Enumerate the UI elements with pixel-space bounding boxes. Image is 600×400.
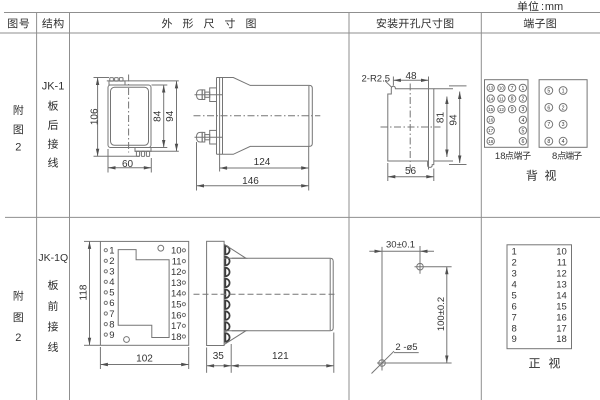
svg-text:mm: mm: [545, 1, 563, 13]
svg-text:2 -ø5: 2 -ø5: [395, 342, 417, 353]
svg-text:5: 5: [521, 128, 524, 134]
svg-text:118: 118: [78, 284, 89, 300]
svg-text:106: 106: [90, 108, 101, 125]
svg-text:30±0.1: 30±0.1: [386, 240, 415, 251]
svg-text:5: 5: [109, 288, 114, 299]
svg-text:JK-1: JK-1: [42, 80, 65, 92]
svg-text:7: 7: [109, 309, 114, 320]
svg-text:6: 6: [547, 105, 550, 111]
svg-text:1: 1: [562, 88, 565, 94]
svg-text:10: 10: [171, 246, 182, 257]
svg-text:94: 94: [165, 110, 176, 122]
svg-text:JK-1Q: JK-1Q: [38, 252, 68, 264]
svg-text:18: 18: [495, 151, 506, 162]
svg-text:1: 1: [521, 86, 524, 92]
svg-text:94: 94: [449, 114, 460, 126]
svg-text:17: 17: [171, 321, 182, 332]
svg-text:14: 14: [556, 291, 567, 302]
svg-text:2: 2: [109, 256, 114, 267]
svg-text:8: 8: [552, 151, 557, 162]
svg-text:15: 15: [171, 300, 182, 311]
svg-text:16: 16: [556, 312, 567, 323]
svg-text:6: 6: [109, 298, 114, 309]
svg-text:4: 4: [512, 280, 517, 291]
svg-text:5: 5: [547, 88, 550, 94]
svg-text:4: 4: [521, 118, 524, 124]
svg-text:3: 3: [109, 267, 114, 278]
svg-text:15: 15: [556, 301, 567, 312]
svg-text:7: 7: [511, 86, 514, 92]
svg-text:2: 2: [15, 332, 21, 344]
svg-text:13: 13: [171, 278, 182, 289]
svg-text:121: 121: [272, 351, 289, 362]
svg-text:18: 18: [171, 332, 182, 343]
svg-text:7: 7: [512, 312, 517, 323]
svg-text:8: 8: [109, 319, 114, 330]
svg-text:16: 16: [171, 310, 182, 321]
svg-text:1: 1: [512, 247, 517, 258]
svg-text:146: 146: [242, 176, 259, 187]
svg-text:2-R2.5: 2-R2.5: [362, 73, 391, 84]
svg-text:2: 2: [562, 105, 565, 111]
svg-text:17: 17: [488, 128, 494, 133]
svg-text:8: 8: [547, 139, 550, 145]
svg-text:5: 5: [512, 291, 517, 302]
svg-text:16: 16: [488, 118, 494, 123]
svg-text:1: 1: [109, 246, 114, 257]
svg-text:48: 48: [405, 71, 417, 82]
svg-text:17: 17: [556, 323, 567, 334]
svg-text:11: 11: [557, 258, 567, 269]
svg-text:14: 14: [488, 96, 494, 101]
svg-text:100±0.2: 100±0.2: [436, 297, 447, 331]
svg-text:4: 4: [562, 139, 565, 145]
svg-text:9: 9: [109, 330, 114, 341]
svg-text:102: 102: [136, 354, 153, 365]
svg-text:18: 18: [488, 139, 494, 144]
svg-text:35: 35: [213, 351, 225, 362]
svg-text:6: 6: [521, 139, 524, 145]
svg-text:18: 18: [556, 334, 567, 345]
svg-text:3: 3: [562, 122, 565, 128]
svg-text:13: 13: [488, 86, 494, 91]
svg-text:12: 12: [171, 267, 182, 278]
svg-text:8: 8: [511, 97, 514, 103]
svg-text:84: 84: [152, 110, 163, 122]
svg-text:12: 12: [499, 107, 505, 112]
svg-text::: :: [541, 1, 544, 13]
svg-text:15: 15: [488, 107, 494, 112]
svg-text:4: 4: [109, 277, 114, 288]
svg-text:12: 12: [556, 269, 567, 280]
svg-text:81: 81: [436, 112, 447, 124]
svg-text:10: 10: [556, 247, 567, 258]
svg-text:124: 124: [254, 157, 271, 168]
svg-text:60: 60: [122, 159, 134, 170]
svg-text:11: 11: [172, 256, 182, 267]
svg-text:14: 14: [171, 289, 182, 300]
svg-text:8: 8: [512, 323, 517, 334]
svg-text:56: 56: [405, 166, 417, 177]
svg-text:13: 13: [556, 280, 567, 291]
svg-text:3: 3: [521, 107, 524, 113]
svg-text:11: 11: [499, 96, 504, 101]
svg-text:10: 10: [499, 86, 505, 91]
svg-text:3: 3: [512, 269, 517, 280]
svg-text:7: 7: [547, 122, 550, 128]
svg-text:2: 2: [521, 97, 524, 103]
svg-text:2: 2: [512, 258, 517, 269]
svg-text:6: 6: [512, 301, 517, 312]
svg-text:2: 2: [15, 142, 21, 154]
svg-text:9: 9: [512, 334, 517, 345]
svg-text:9: 9: [511, 107, 514, 113]
